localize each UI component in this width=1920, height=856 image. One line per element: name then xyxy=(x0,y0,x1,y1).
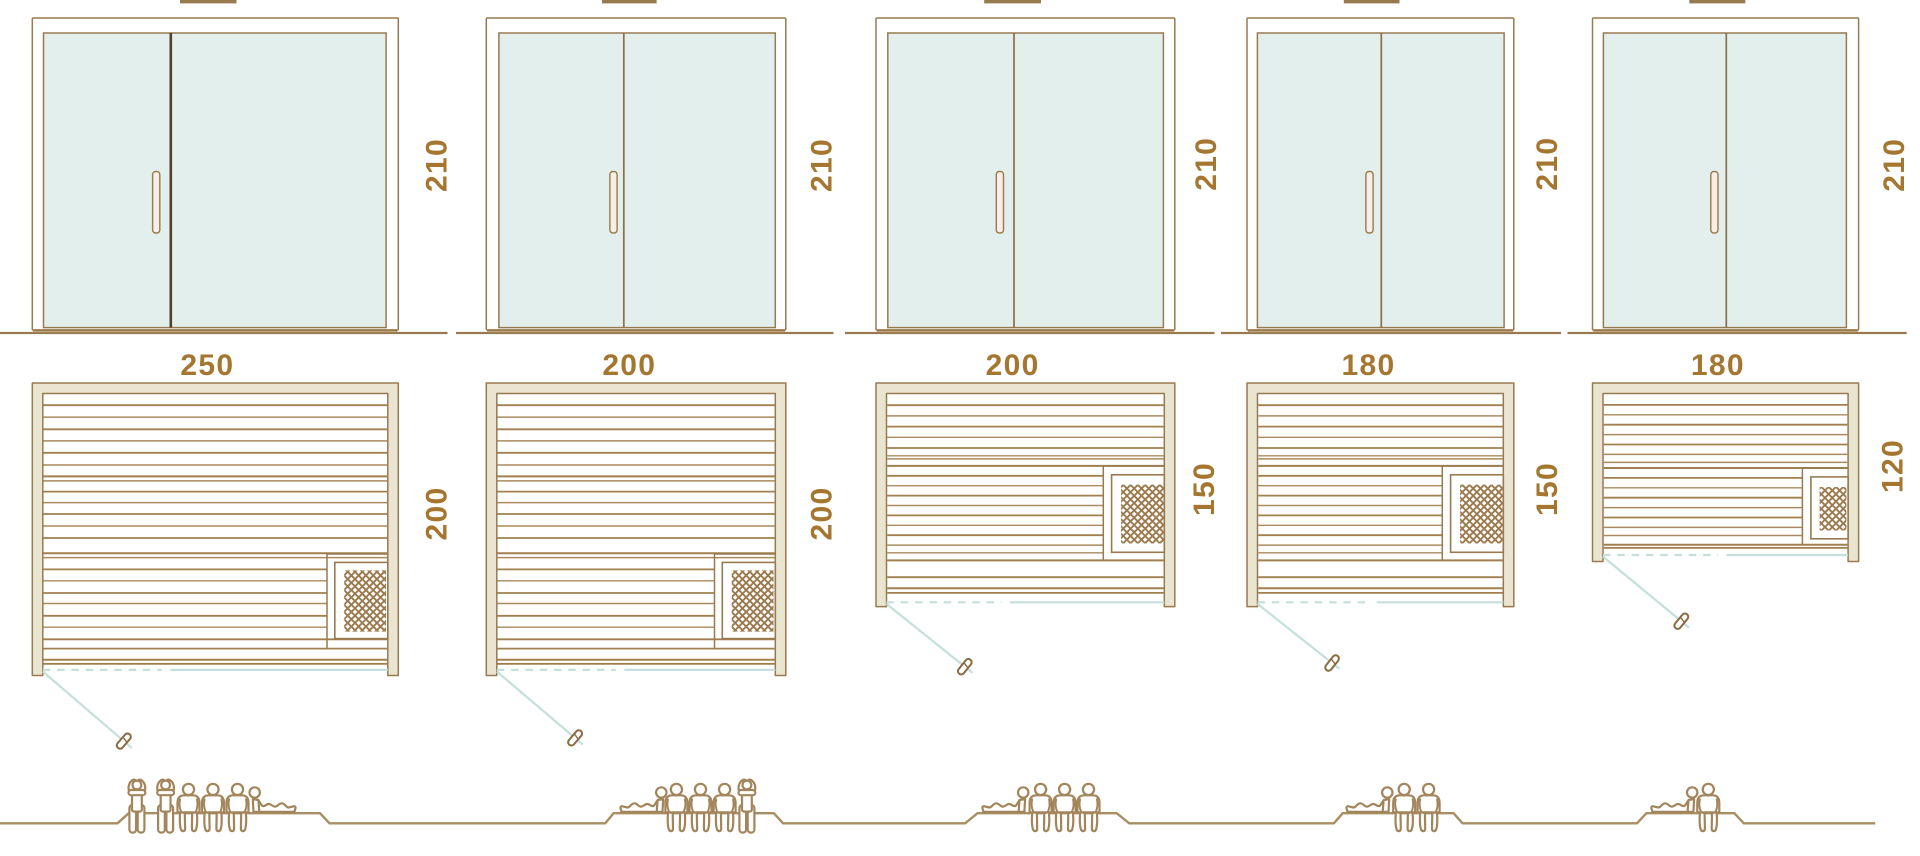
svg-text:150: 150 xyxy=(1531,462,1564,516)
svg-text:210: 210 xyxy=(1878,138,1911,192)
svg-text:180: 180 xyxy=(1342,349,1396,382)
svg-text:210: 210 xyxy=(1531,137,1564,191)
svg-text:120: 120 xyxy=(1877,439,1910,493)
svg-text:210: 210 xyxy=(421,138,454,192)
svg-text:210: 210 xyxy=(806,138,839,192)
svg-text:200: 200 xyxy=(421,487,454,541)
svg-text:200: 200 xyxy=(602,349,656,382)
svg-text:250: 250 xyxy=(180,349,234,382)
svg-text:150: 150 xyxy=(1188,462,1221,516)
svg-text:180: 180 xyxy=(1691,349,1745,382)
svg-text:200: 200 xyxy=(986,349,1040,382)
svg-text:210: 210 xyxy=(1190,137,1223,191)
svg-text:200: 200 xyxy=(806,487,839,541)
